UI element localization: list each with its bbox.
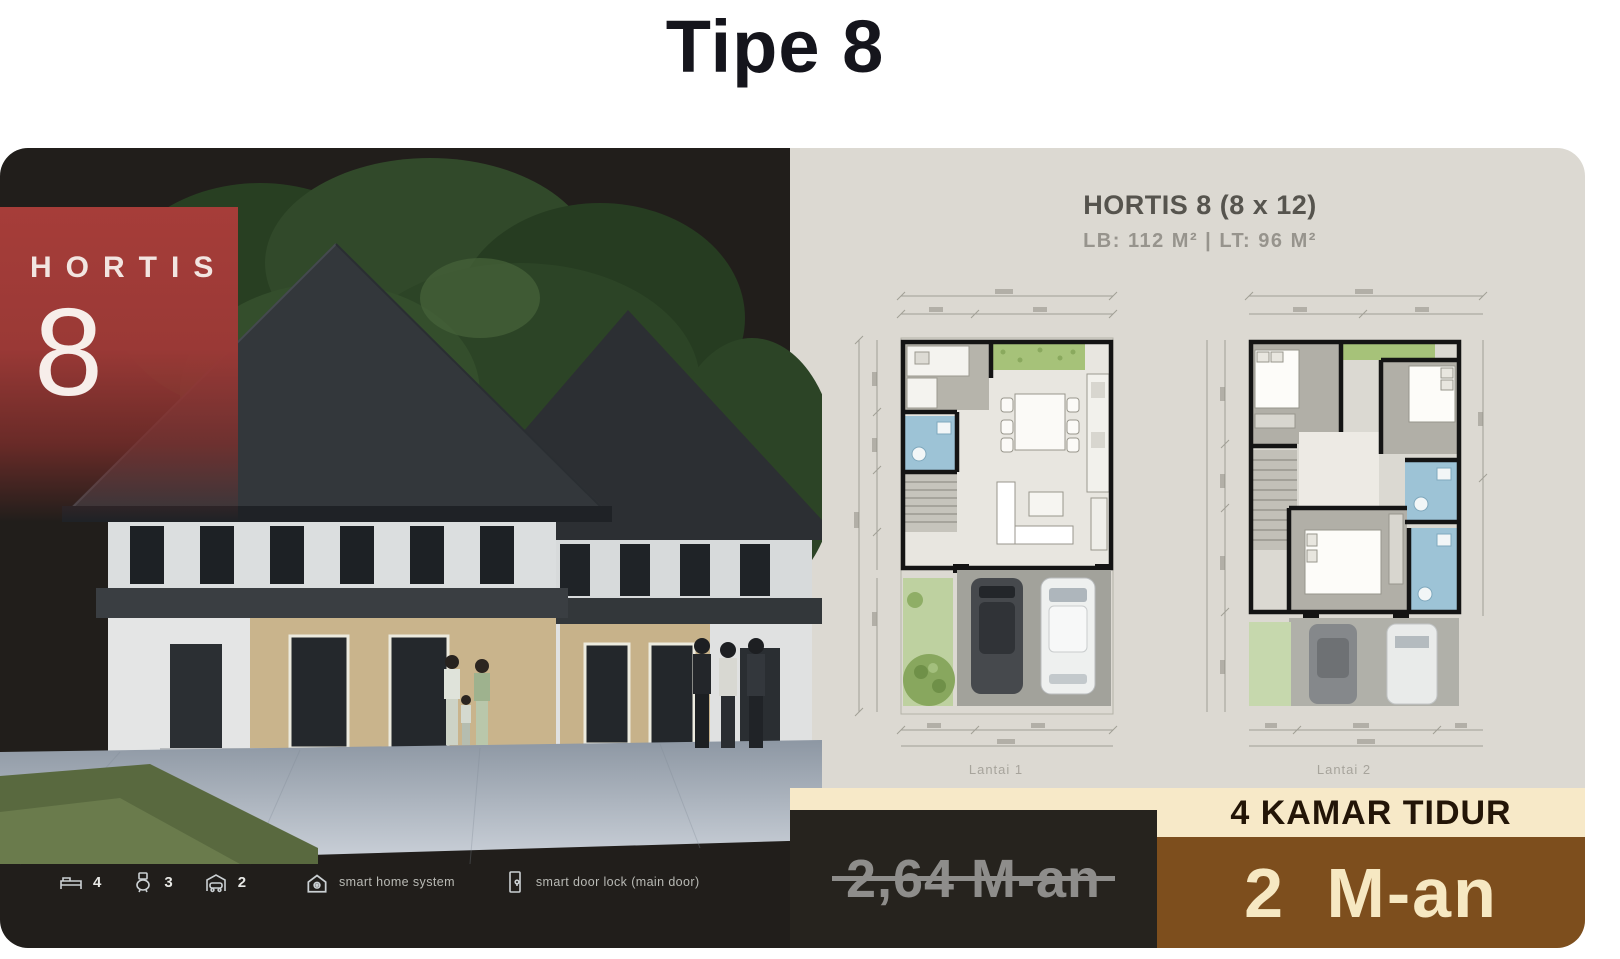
bed-icon xyxy=(58,870,84,894)
garden-strip xyxy=(1249,622,1291,706)
car-white xyxy=(1041,578,1095,694)
plan-title: HORTIS 8 (8 x 12) xyxy=(850,190,1550,221)
stairs xyxy=(905,474,957,532)
feature-bathrooms: 3 xyxy=(131,870,172,894)
carport-below xyxy=(1289,618,1459,706)
badge-number: 8 xyxy=(34,301,238,406)
page-title: Tipe 8 xyxy=(0,4,1550,89)
new-price: 2 M-an xyxy=(1244,853,1498,933)
plan-label-lantai-1: Lantai 1 xyxy=(845,762,1147,777)
old-price-block: 2,64 M-an xyxy=(790,810,1157,948)
bedrooms-banner: 4 KAMAR TIDUR xyxy=(1157,790,1585,837)
pantry-counter xyxy=(1087,374,1109,492)
hall xyxy=(1299,432,1379,506)
planter xyxy=(1343,344,1435,360)
badge-brand: HORTIS xyxy=(30,251,238,285)
garage-icon xyxy=(203,870,229,894)
garden xyxy=(903,578,955,706)
plan-label-lantai-2: Lantai 2 xyxy=(1193,762,1495,777)
dining-set xyxy=(1001,394,1079,452)
smart-home-label: smart home system xyxy=(339,875,455,889)
plan-areas: LB: 112 M² | LT: 96 M² xyxy=(850,230,1550,253)
bedroom-2 xyxy=(1381,360,1457,454)
car-dark xyxy=(971,578,1023,694)
old-price: 2,64 M-an xyxy=(846,848,1101,910)
planter xyxy=(993,344,1085,370)
floor-plan-lantai-1 xyxy=(845,282,1147,760)
feature-garage: 2 xyxy=(203,870,246,894)
feature-smart-door: smart door lock (main door) xyxy=(503,869,700,895)
bathroom-2 xyxy=(1411,528,1457,612)
smart-door-label: smart door lock (main door) xyxy=(536,875,700,889)
features-row: 4 3 2 smart home system smart door xyxy=(58,862,700,902)
door-lock-icon xyxy=(503,869,527,895)
bathrooms-count: 3 xyxy=(164,874,172,891)
toilet-icon xyxy=(131,870,155,894)
bedrooms-count: 4 xyxy=(93,874,101,891)
bathroom xyxy=(905,416,957,470)
hortis-badge: HORTIS 8 xyxy=(0,207,238,522)
feature-smart-home: smart home system xyxy=(304,869,455,895)
plan-header: HORTIS 8 (8 x 12) LB: 112 M² | LT: 96 M² xyxy=(850,190,1550,253)
kitchen xyxy=(905,344,989,410)
smart-home-icon xyxy=(304,869,330,895)
feature-bedrooms: 4 xyxy=(58,870,101,894)
new-price-block: 2 M-an xyxy=(1157,837,1585,948)
bathroom-1 xyxy=(1405,462,1457,520)
flyer-canvas: Tipe 8 xyxy=(0,0,1620,959)
ground-pavement xyxy=(0,740,822,864)
bedroom-1 xyxy=(1253,344,1341,444)
bedroom-3 xyxy=(1289,508,1407,612)
floor-plan-lantai-2 xyxy=(1193,282,1495,760)
garage-count: 2 xyxy=(238,874,246,891)
